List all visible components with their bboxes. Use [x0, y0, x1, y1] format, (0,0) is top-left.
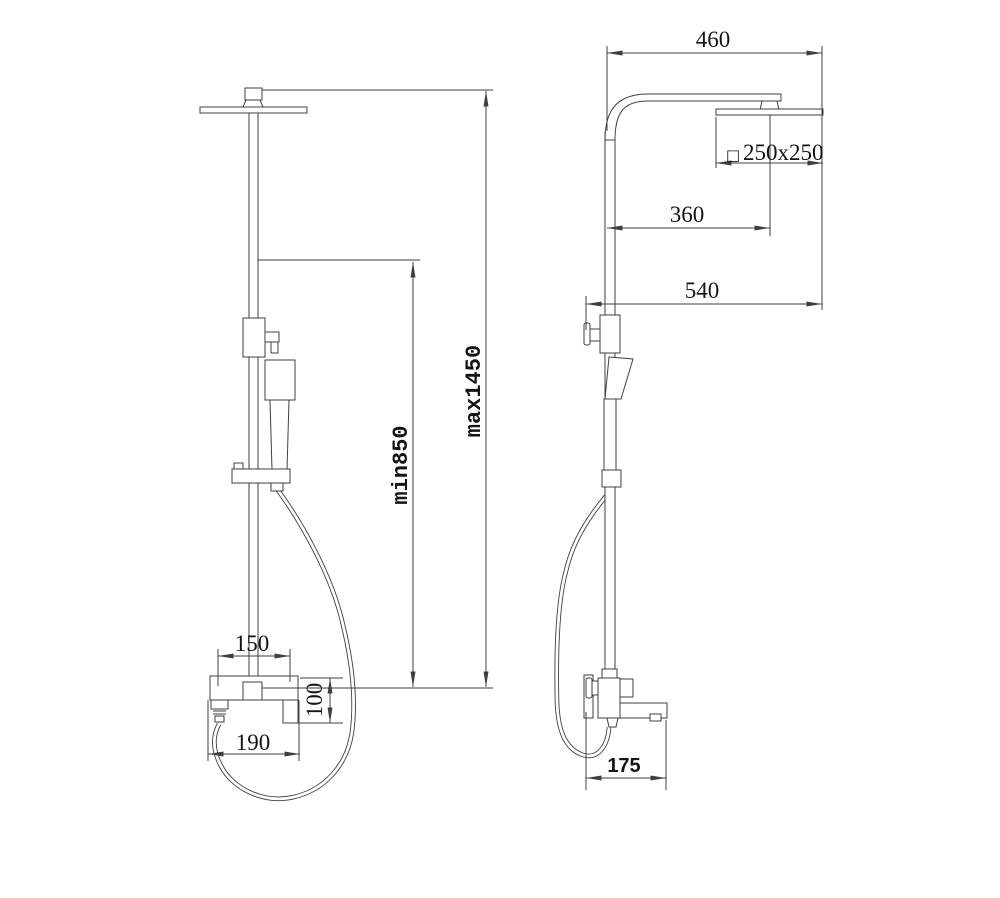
dim-label-150: 150	[235, 631, 270, 656]
side-head-plate	[716, 109, 823, 115]
side-valve-body	[598, 678, 620, 718]
front-overhead-shower	[200, 88, 307, 113]
front-slider-lever	[271, 342, 278, 353]
dim-label-175: 175	[607, 755, 640, 777]
side-diverter-stem	[590, 329, 600, 341]
side-hand-shower	[602, 357, 633, 487]
side-holder-bracket	[602, 470, 621, 487]
side-overhead-arm	[605, 94, 781, 140]
dim-label-360: 360	[670, 202, 705, 227]
front-hand-shower	[232, 360, 295, 491]
side-view-linework	[557, 94, 823, 756]
dim-label-460: 460	[696, 27, 731, 52]
shower-system-technical-drawing: 150 190 100 min850 max1450 460 □ 250x250…	[0, 0, 1000, 898]
square-section-symbol: □	[726, 146, 740, 164]
side-hand-shower-head	[605, 357, 633, 399]
front-riser-pole	[249, 113, 258, 676]
dim-label-100: 100	[302, 683, 327, 718]
front-head-connector	[245, 88, 262, 100]
front-valve-center-block	[243, 682, 262, 700]
side-spout-aerator	[650, 714, 661, 721]
front-head-plate	[200, 107, 307, 113]
side-pipe-fitting	[602, 669, 617, 678]
side-hose-port	[607, 718, 618, 727]
dim-label-max1450: max1450	[462, 345, 487, 437]
front-hose-outlet	[215, 716, 224, 722]
side-diverter-body	[600, 315, 620, 353]
dim-label-250x250: 250x250	[743, 140, 824, 165]
dim-label-540: 540	[685, 278, 720, 303]
side-slider-diverter	[584, 315, 620, 353]
dim-label-190: 190	[236, 730, 271, 755]
side-valve-block	[620, 679, 633, 697]
front-hand-shower-handle	[270, 400, 289, 470]
front-spout-end	[283, 700, 298, 723]
front-inlet-ribs	[213, 711, 226, 714]
front-slider-diverter	[243, 318, 279, 357]
side-hand-shower-handle	[604, 399, 616, 470]
side-mixer-valve	[584, 669, 667, 727]
front-slider-body	[243, 318, 265, 357]
front-slider-knob	[265, 332, 279, 342]
front-holder-bracket	[232, 469, 290, 483]
front-view-linework	[200, 88, 354, 799]
front-hose-nut	[271, 483, 283, 491]
drawing-canvas: 150 190 100 min850 max1450 460 □ 250x250…	[0, 0, 1000, 898]
front-hand-shower-head	[265, 360, 295, 400]
front-mixer-valve	[210, 676, 298, 723]
side-diverter-knob	[584, 323, 590, 345]
side-lever-stem	[592, 681, 598, 695]
front-left-inlet	[211, 700, 228, 709]
side-overhead-shower	[716, 101, 823, 115]
front-head-flare	[243, 100, 263, 107]
side-lever-knob	[586, 678, 592, 698]
dim-label-min850: min850	[389, 425, 414, 504]
